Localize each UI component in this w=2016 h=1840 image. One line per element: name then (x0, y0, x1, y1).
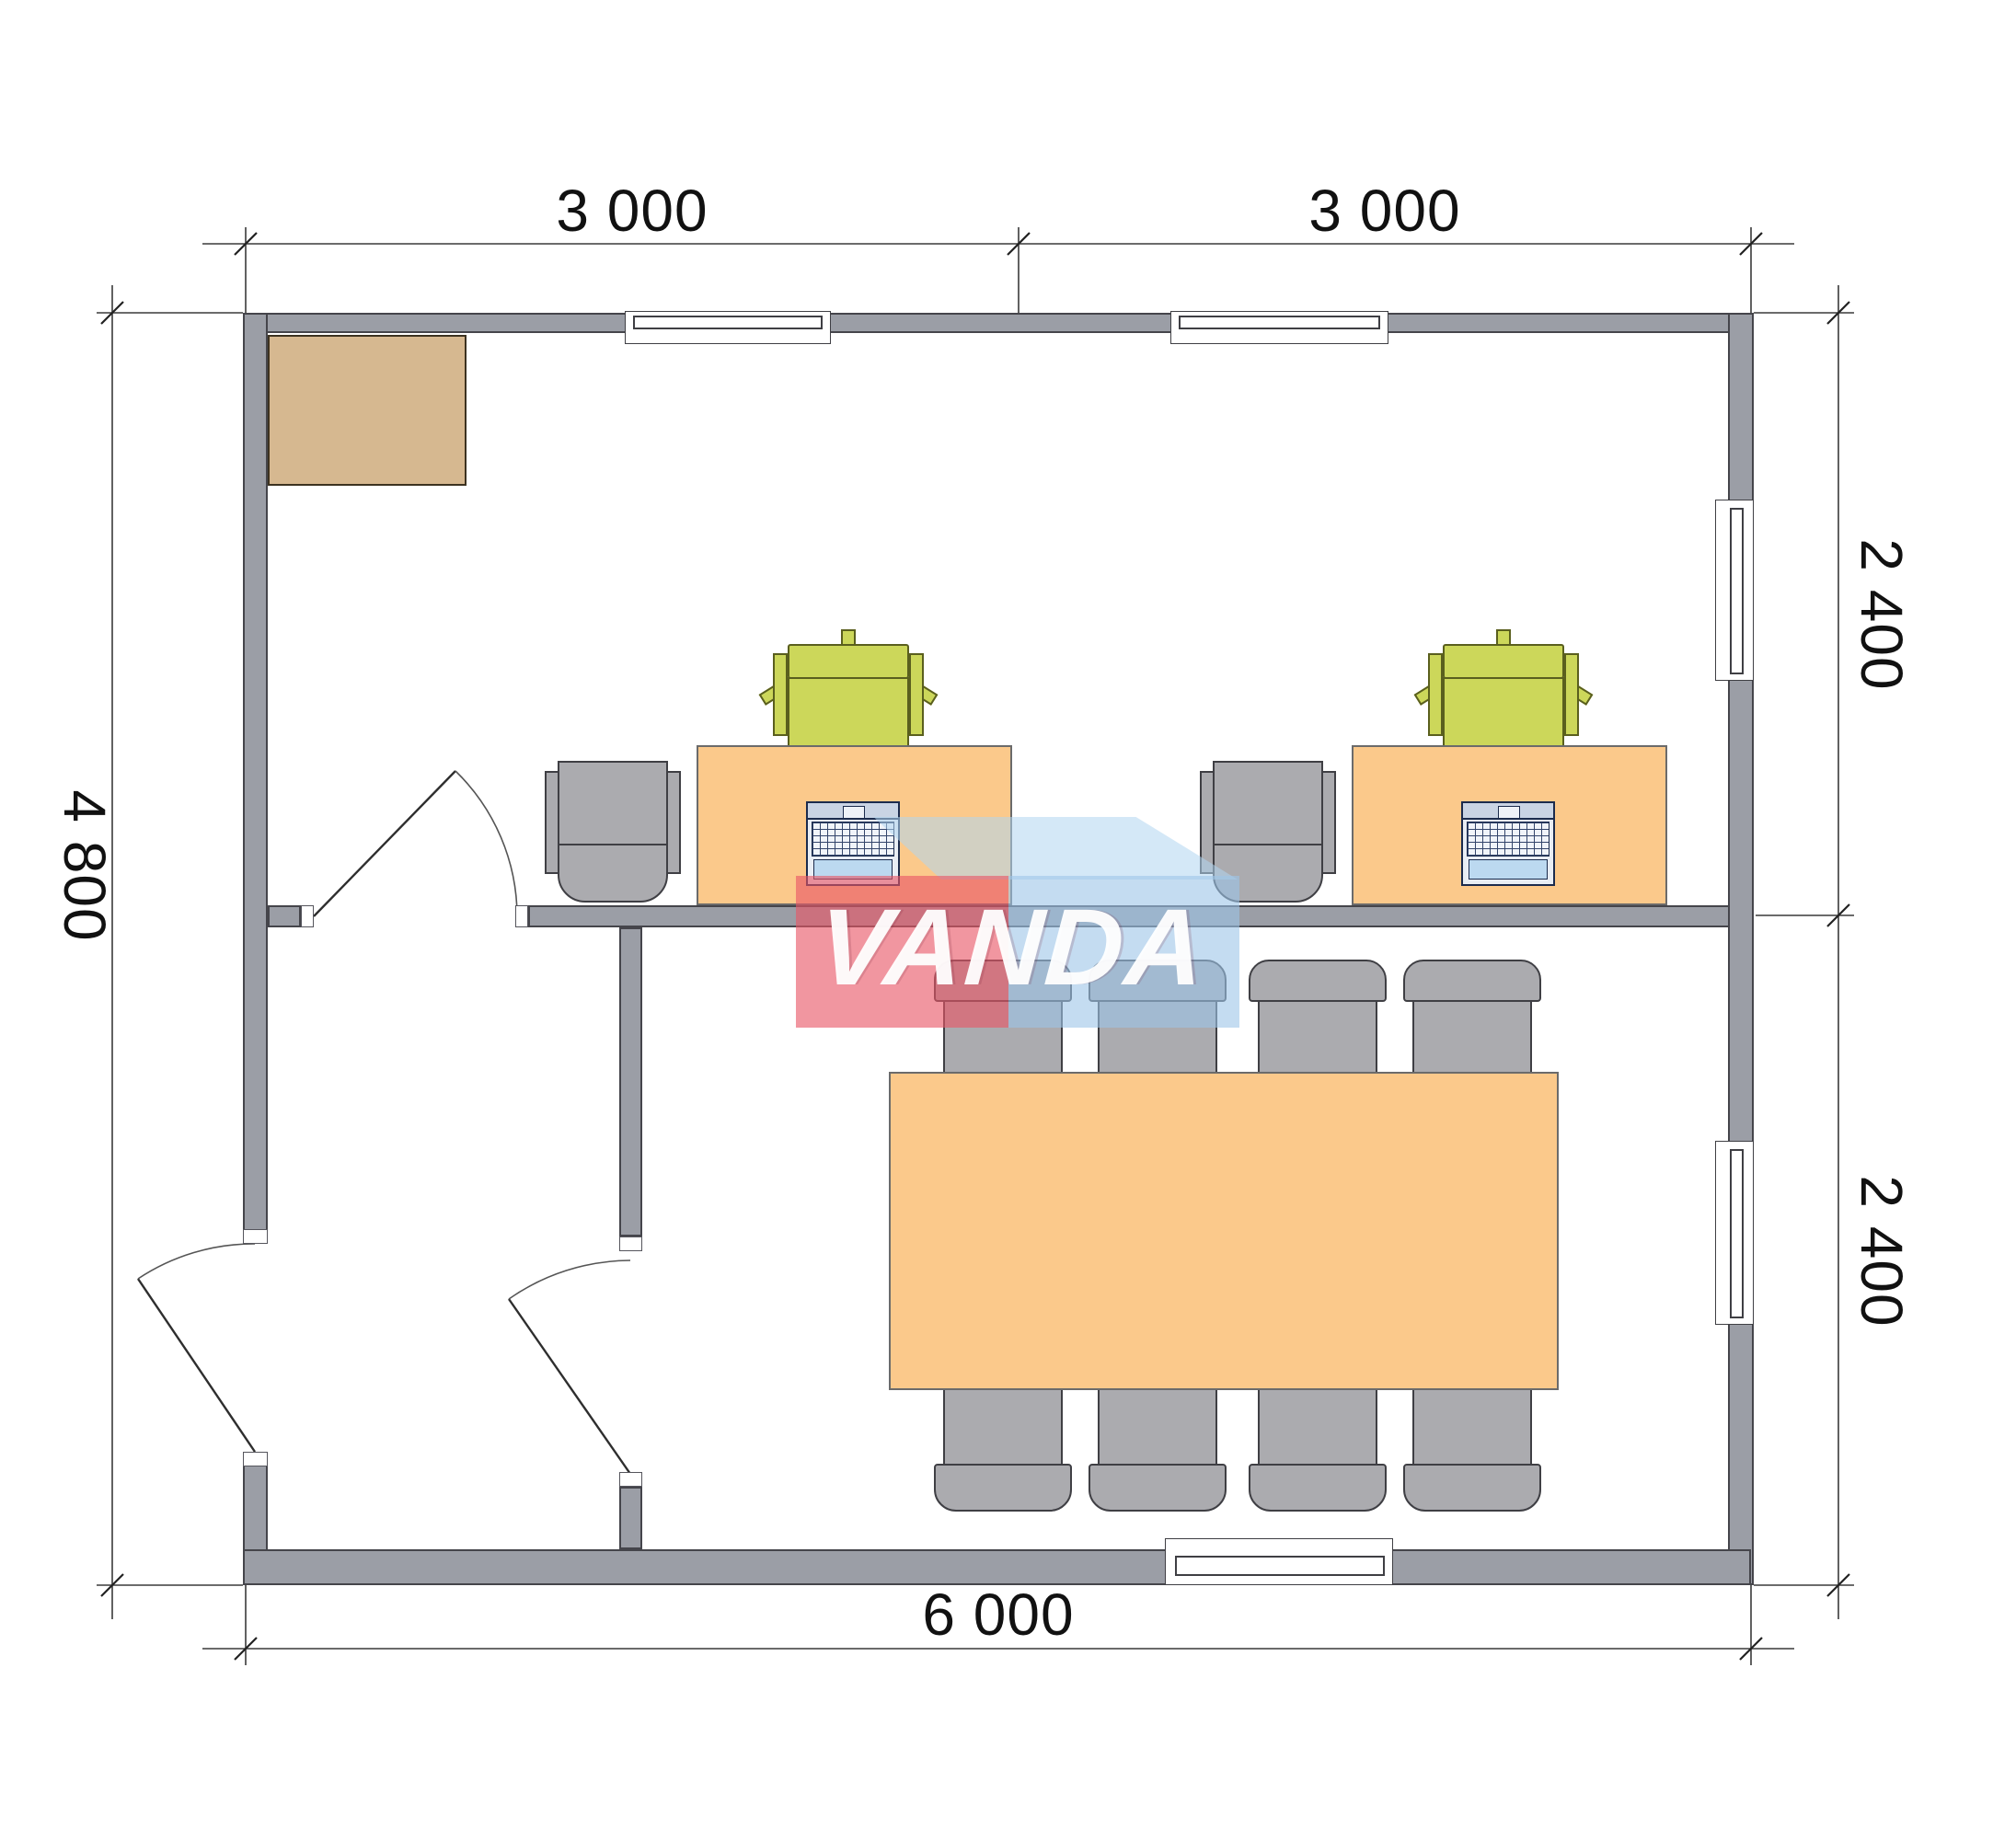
chair-armrest (909, 653, 924, 736)
chair-seat (1443, 677, 1564, 751)
door-swing-entry (138, 1244, 255, 1279)
chair-armrest (773, 653, 788, 736)
dimension-top-right: 3 000 (1293, 177, 1477, 245)
door-leaf-partition (509, 1299, 630, 1474)
wall-middle-stub (268, 905, 301, 927)
window-frame (1175, 1556, 1385, 1576)
conference-chair-6 (1089, 1383, 1227, 1512)
office-chair-1 (766, 629, 931, 751)
window-frame (1730, 1149, 1744, 1318)
door-leaf-entry (138, 1279, 255, 1452)
window-right-2 (1715, 1141, 1754, 1325)
chair-backrest (1249, 1464, 1387, 1512)
dimension-left: 4 800 (51, 728, 119, 1004)
wall-partition-upper (619, 927, 642, 1236)
door-swing-interior (455, 771, 517, 916)
window-top-2 (1170, 311, 1388, 344)
jamb-partition-lower (619, 1472, 642, 1487)
wall-left-upper (243, 313, 268, 1244)
chair-seat (1412, 1383, 1532, 1467)
laptop-2 (1461, 801, 1555, 886)
jamb-interior-right (515, 905, 528, 927)
chair-armrest (1428, 653, 1443, 736)
window-top-1 (625, 311, 831, 344)
window-frame (1179, 316, 1380, 329)
dimension-top-left: 3 000 (540, 177, 724, 245)
conference-chair-4 (1403, 960, 1541, 1077)
dimension-right-top: 2 400 (1848, 477, 1916, 753)
chair-backrest (1249, 960, 1387, 1002)
jamb-interior-left (301, 905, 314, 927)
window-frame (633, 316, 823, 329)
laptop-screen (1463, 803, 1553, 820)
chair-seat (1412, 998, 1532, 1077)
window-right-1 (1715, 500, 1754, 681)
conference-chair-8 (1403, 1383, 1541, 1512)
chair-seat (1098, 1383, 1217, 1467)
wall-top (243, 313, 1751, 333)
chair-seat (1258, 1383, 1377, 1467)
chair-seat (788, 677, 909, 751)
wall-partition-lower (619, 1487, 642, 1549)
conference-chair-7 (1249, 1383, 1387, 1512)
conference-table (889, 1072, 1559, 1390)
chair-backrest (1403, 1464, 1541, 1512)
jamb-entry-lower (243, 1452, 268, 1466)
visitor-chair-1 (545, 761, 681, 903)
dimension-bottom: 6 000 (906, 1581, 1090, 1649)
door-swing-partition (509, 1260, 630, 1299)
jamb-entry-upper (243, 1229, 268, 1244)
floor-plan: 3 000 3 000 6 000 4 800 2 400 2 400 (0, 0, 2016, 1840)
laptop-1 (806, 801, 900, 886)
chair-backrest (788, 644, 909, 679)
window-frame (1730, 508, 1744, 674)
chair-backrest (934, 1464, 1072, 1512)
watermark-text: VANDA (791, 885, 1233, 1010)
wardrobe (268, 335, 467, 486)
door-leaf-interior (314, 771, 455, 916)
window-bottom (1165, 1538, 1393, 1585)
jamb-partition-upper (619, 1236, 642, 1251)
laptop-keyboard (812, 822, 894, 857)
office-chair-2 (1421, 629, 1586, 751)
laptop-trackpad (1469, 859, 1548, 880)
chair-backrest (1443, 644, 1564, 679)
chair-backrest (1089, 1464, 1227, 1512)
chair-seat (1258, 998, 1377, 1077)
wall-bottom (243, 1549, 1751, 1585)
conference-chair-3 (1249, 960, 1387, 1077)
dimension-right-bottom: 2 400 (1848, 1113, 1916, 1389)
laptop-keyboard (1467, 822, 1549, 857)
conference-chair-5 (934, 1383, 1072, 1512)
chair-seat (558, 844, 668, 903)
chair-seat (943, 1383, 1063, 1467)
chair-armrest (1564, 653, 1579, 736)
chair-backrest (1403, 960, 1541, 1002)
